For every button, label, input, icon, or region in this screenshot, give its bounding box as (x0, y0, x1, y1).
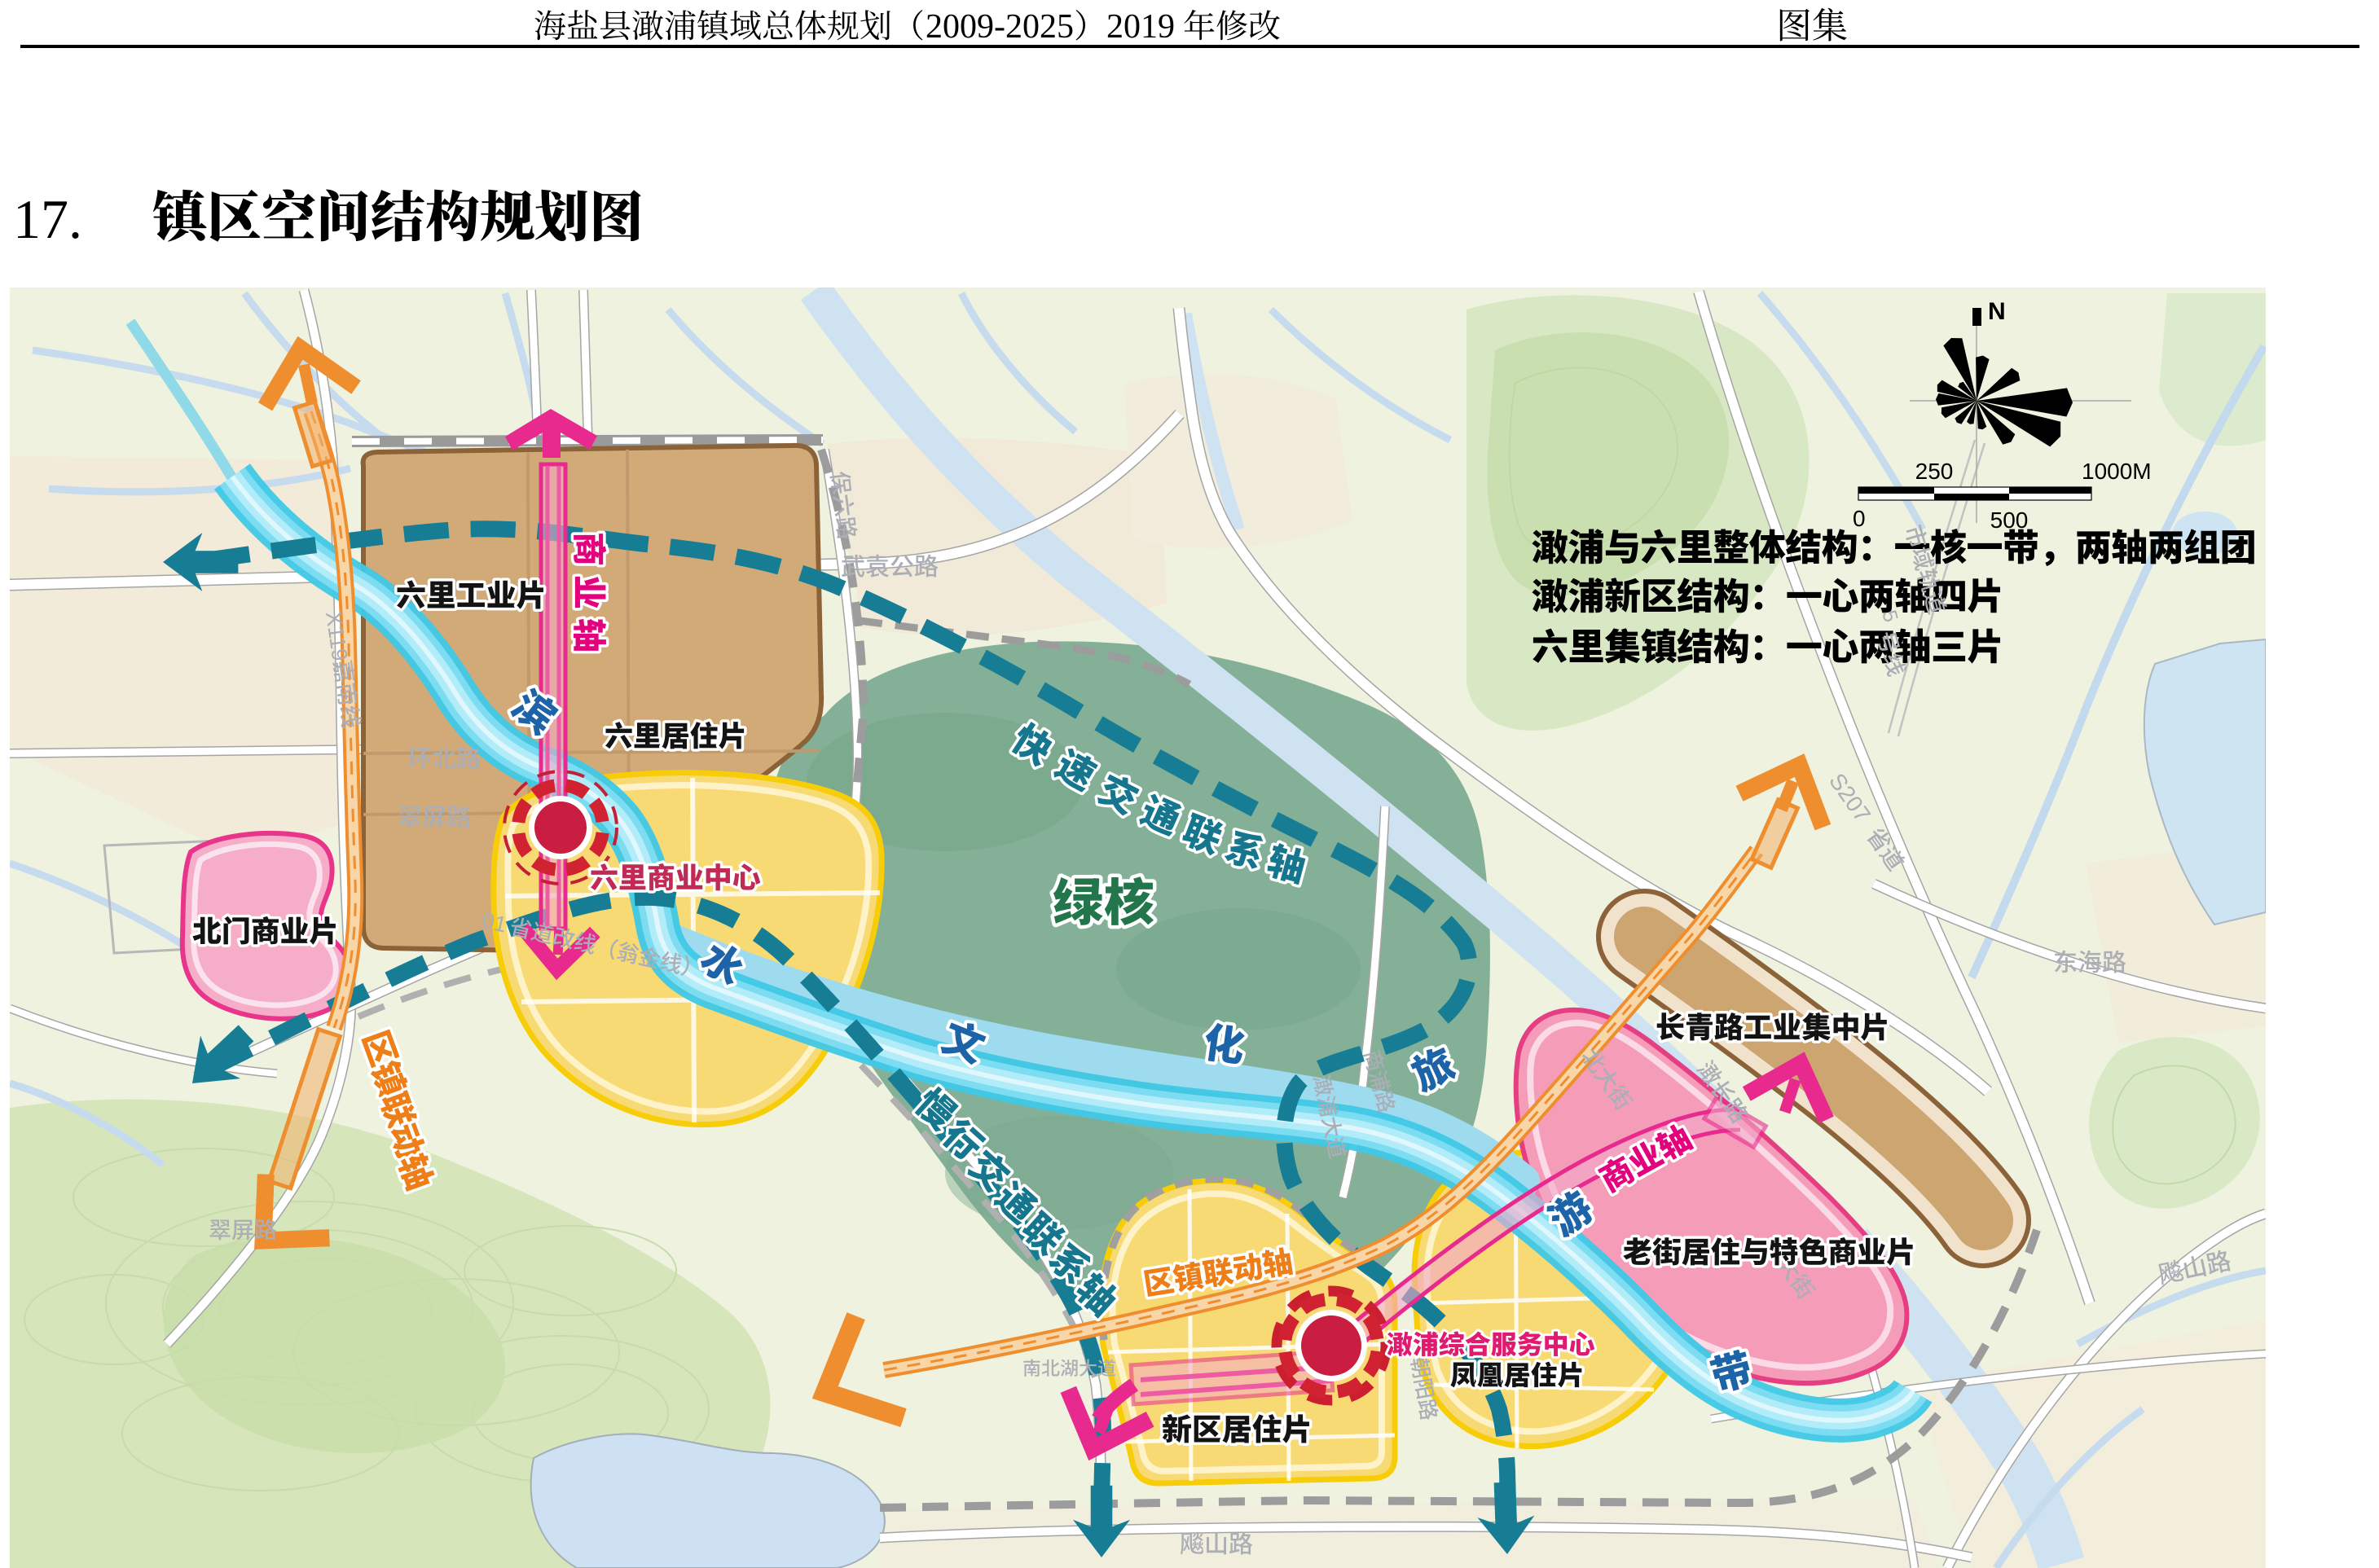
svg-text:0: 0 (1853, 506, 1866, 531)
svg-text:500: 500 (1990, 507, 2029, 533)
svg-text:17.: 17. (13, 188, 82, 250)
svg-text:1000M: 1000M (2082, 459, 2152, 484)
svg-text:2019: 2019 (1106, 8, 1175, 46)
svg-text:250: 250 (1915, 459, 1954, 484)
svg-text:2009-2025: 2009-2025 (926, 8, 1074, 46)
svg-text:N: N (1988, 298, 2006, 325)
